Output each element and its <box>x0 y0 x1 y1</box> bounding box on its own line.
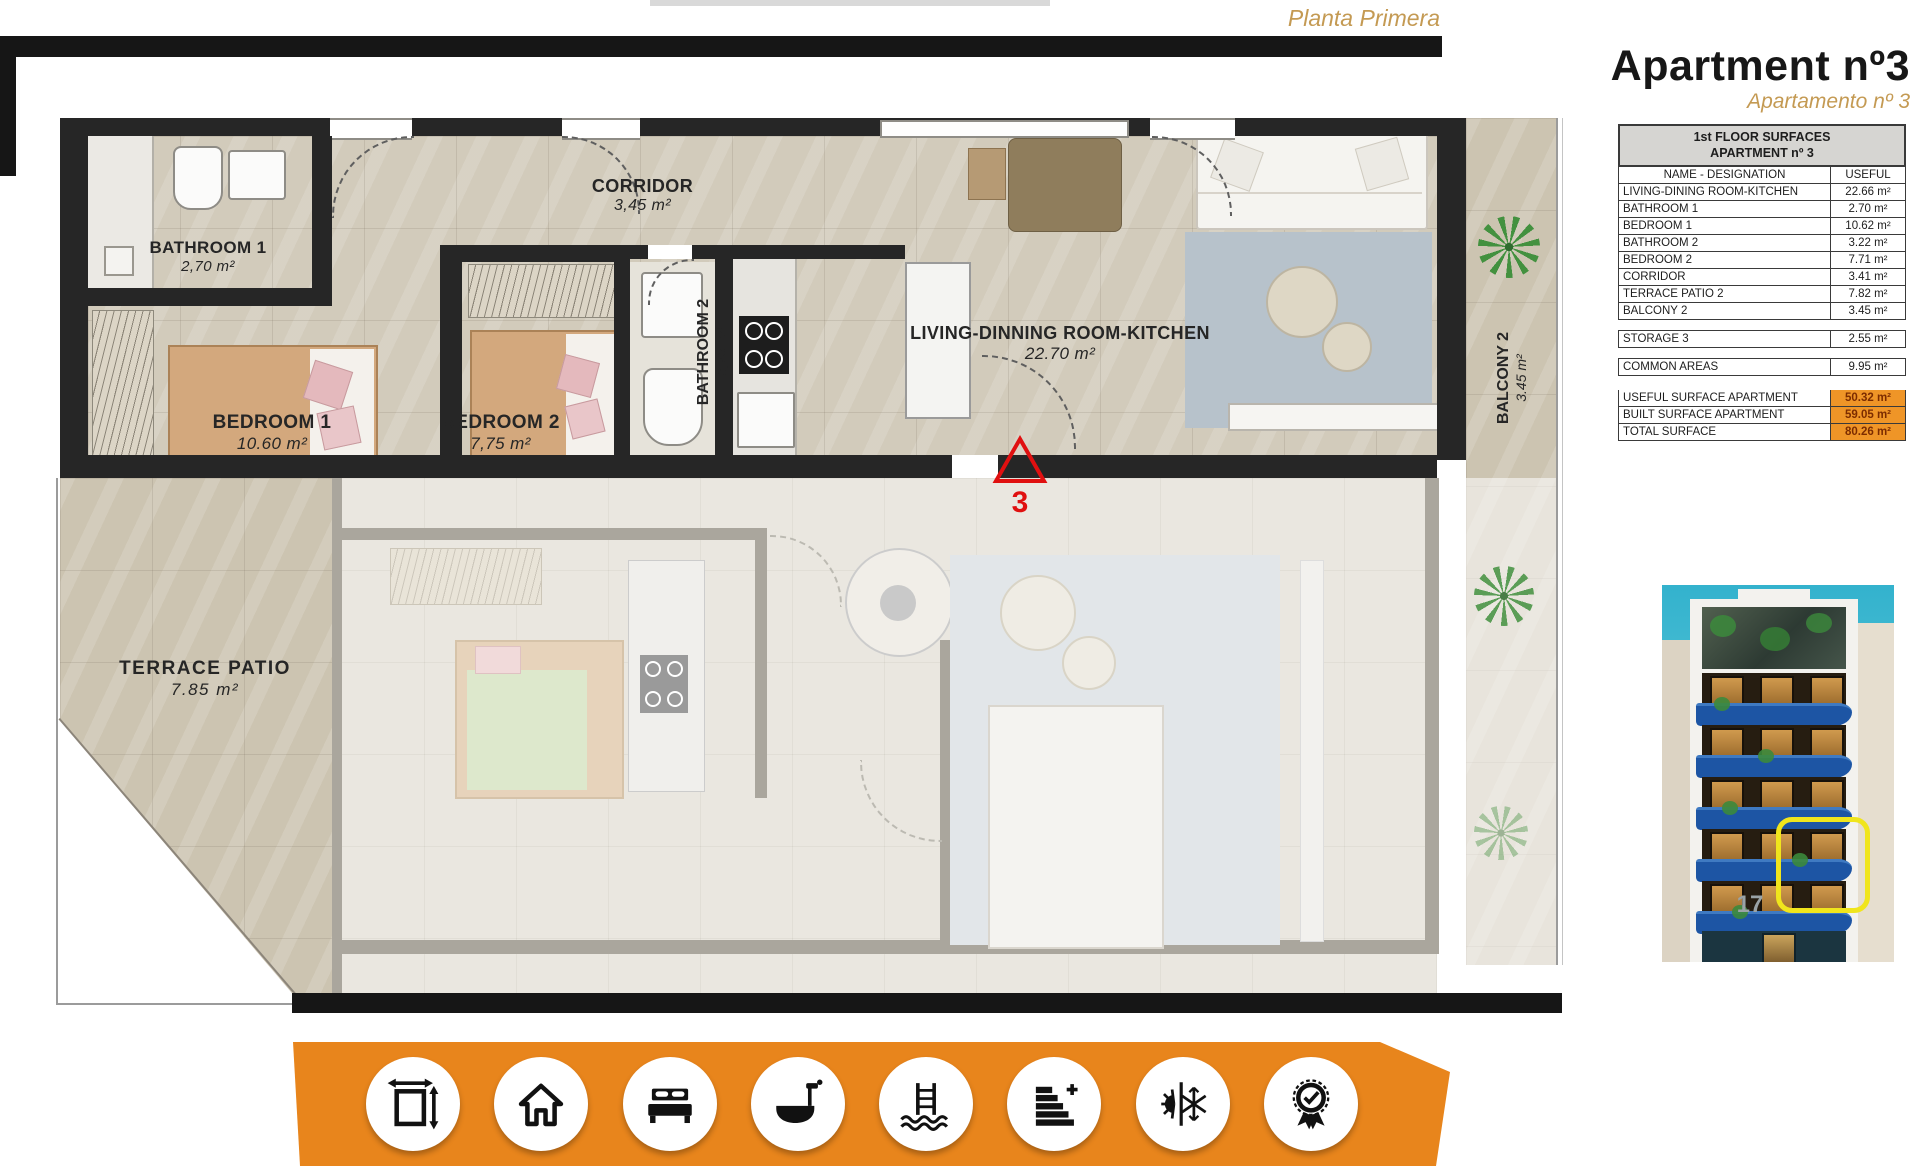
ghost-wall <box>755 528 767 798</box>
row-name: COMMON AREAS <box>1619 359 1831 375</box>
sofa-seam <box>1198 192 1422 194</box>
page-subtitle: Apartamento nº 3 <box>1500 90 1910 114</box>
table-row: BEDROOM 110.62 m² <box>1618 218 1906 235</box>
burner <box>765 350 783 368</box>
wall-bedroom2-top <box>462 245 614 262</box>
bed-icon <box>623 1057 717 1151</box>
roof-plant <box>1806 613 1832 633</box>
sofa-pillow <box>1355 137 1409 191</box>
wall-kitchen-top <box>733 245 905 259</box>
wall-bathroom2-left <box>614 245 630 460</box>
row-value: 3.41 m² <box>1831 269 1905 285</box>
ghost-pouf <box>1062 636 1116 690</box>
terrace-border <box>56 478 58 1005</box>
burner <box>645 661 661 677</box>
burner <box>667 691 683 707</box>
room-area: 7.85 m² <box>105 680 305 700</box>
row-name: LIVING-DINING ROOM-KITCHEN <box>1619 184 1831 200</box>
table-row: BATHROOM 23.22 m² <box>1618 235 1906 252</box>
ghost-pouf <box>1000 575 1076 651</box>
ghost-blanket <box>467 670 587 790</box>
plant-icon <box>1474 806 1528 860</box>
dining-table <box>1008 138 1122 232</box>
row-value: 50.32 m² <box>1831 390 1905 406</box>
row-name: TERRACE PATIO 2 <box>1619 286 1831 302</box>
row-name: STORAGE 3 <box>1619 331 1831 347</box>
ghost-console <box>1300 560 1324 942</box>
table-summary-row: BUILT SURFACE APARTMENT59.05 m² <box>1618 407 1906 424</box>
label-bathroom1: BATHROOM 1 2,70 m² <box>118 238 298 276</box>
col-useful: USEFUL <box>1831 167 1905 183</box>
wall-bathroom1-bottom <box>88 288 332 306</box>
row-name: BEDROOM 2 <box>1619 252 1831 268</box>
col-name: NAME - DESIGNATION <box>1619 167 1831 183</box>
room-name: BEDROOM 1 <box>182 412 362 434</box>
burner <box>765 322 783 340</box>
row-name: BATHROOM 1 <box>1619 201 1831 217</box>
room-area: 3.45 m² <box>1513 332 1529 424</box>
ghost-wardrobe <box>390 548 542 605</box>
row-value: 80.26 m² <box>1831 424 1905 440</box>
climate-icon <box>1136 1057 1230 1151</box>
top-divider-bar <box>0 36 1442 57</box>
bathtub-icon <box>751 1057 845 1151</box>
table-gap <box>1618 376 1906 390</box>
table-column-headers: NAME - DESIGNATION USEFUL <box>1618 167 1906 184</box>
label-corridor: CORRIDOR 3,45 m² <box>560 176 725 216</box>
tv-console <box>1228 403 1440 431</box>
room-name: BATHROOM 2 <box>695 299 713 405</box>
wardrobe-bedroom1 <box>92 310 154 477</box>
building-photo: 17 <box>1662 585 1894 962</box>
sink-icon <box>228 150 286 200</box>
row-value: 3.22 m² <box>1831 235 1905 251</box>
burner <box>745 350 763 368</box>
balcony-plant <box>1714 697 1730 711</box>
door-opening <box>648 245 692 259</box>
label-terrace: TERRACE PATIO 7.85 m² <box>105 658 305 700</box>
plan-bottom-bar <box>292 993 1562 1013</box>
row-name: USEFUL SURFACE APARTMENT <box>1619 390 1831 406</box>
table-row: BEDROOM 27.71 m² <box>1618 252 1906 269</box>
ghost-wall <box>332 478 342 995</box>
room-name: BEDROOM 2 <box>418 412 583 434</box>
room-name: CORRIDOR <box>560 176 725 197</box>
table-row: TERRACE PATIO 27.82 m² <box>1618 286 1906 303</box>
pool-icon <box>879 1057 973 1151</box>
table-row-common: COMMON AREAS9.95 m² <box>1618 358 1906 376</box>
row-value: 10.62 m² <box>1831 218 1905 234</box>
cooktop-icon <box>739 316 789 374</box>
wall-right <box>1437 118 1466 460</box>
row-name: CORRIDOR <box>1619 269 1831 285</box>
row-name: BATHROOM 2 <box>1619 235 1831 251</box>
balcony-outer-line <box>1556 118 1558 965</box>
surfaces-table: 1st FLOOR SURFACES APARTMENT nº 3 NAME -… <box>1618 124 1906 441</box>
room-area: 3,25 m² <box>713 299 729 405</box>
row-name: BALCONY 2 <box>1619 303 1831 319</box>
room-name: TERRACE PATIO <box>105 658 305 680</box>
table-row-storage: STORAGE 32.55 m² <box>1618 330 1906 348</box>
room-name: BALCONY 2 <box>1495 332 1513 424</box>
label-bedroom2: BEDROOM 2 7,75 m² <box>418 412 583 454</box>
row-value: 3.45 m² <box>1831 303 1905 319</box>
pouf <box>1266 266 1338 338</box>
penthouse-glass <box>1702 607 1846 669</box>
energy-rating-icon <box>1007 1057 1101 1151</box>
table-row: BATHROOM 12.70 m² <box>1618 201 1906 218</box>
room-area: 22.70 m² <box>900 344 1220 364</box>
window <box>880 120 1129 138</box>
ghost-sofa <box>988 705 1164 949</box>
table-title-line1: 1st FLOOR SURFACES <box>1622 129 1902 145</box>
burner <box>667 661 683 677</box>
surfaces-table-header: 1st FLOOR SURFACES APARTMENT nº 3 <box>1618 124 1906 167</box>
wall-left <box>60 118 88 480</box>
unit-marker-triangle <box>992 434 1048 486</box>
terrace-border-bottom <box>56 1003 332 1005</box>
row-value: 7.82 m² <box>1831 286 1905 302</box>
row-name: TOTAL SURFACE <box>1619 424 1831 440</box>
table-title-line2: APARTMENT nº 3 <box>1622 145 1902 161</box>
burner <box>745 322 763 340</box>
table-summary-row: TOTAL SURFACE80.26 m² <box>1618 424 1906 441</box>
room-area: 3,45 m² <box>560 197 725 216</box>
plant-icon <box>1474 566 1534 626</box>
ghost-bed <box>455 640 624 799</box>
ghost-cooktop <box>640 655 688 713</box>
toilet-icon <box>173 146 223 210</box>
balcony-outer-line2 <box>1562 118 1563 965</box>
room-name: LIVING-DINNING ROOM-KITCHEN <box>900 323 1220 344</box>
page-title: Apartment nº3 <box>1500 42 1910 91</box>
room-area: 2,70 m² <box>118 258 298 276</box>
building-floor <box>1702 725 1846 759</box>
row-value: 59.05 m² <box>1831 407 1905 423</box>
room-name: BATHROOM 1 <box>118 238 298 258</box>
ghost-figure <box>880 585 916 621</box>
room-area: 10.60 m² <box>182 434 362 454</box>
room-area: 7,75 m² <box>418 434 583 454</box>
pouf <box>1322 322 1372 372</box>
label-bedroom1: BEDROOM 1 10.60 m² <box>182 412 362 454</box>
table-gap <box>1618 348 1906 358</box>
row-value: 7.71 m² <box>1831 252 1905 268</box>
row-value: 9.95 m² <box>1831 359 1905 375</box>
floor-label: Planta Primera <box>1040 5 1440 32</box>
burner <box>645 691 661 707</box>
wall-bottom <box>60 455 1437 478</box>
roof-plant <box>1760 627 1790 651</box>
table-row: LIVING-DINING ROOM-KITCHEN22.66 m² <box>1618 184 1906 201</box>
toilet-icon <box>643 368 703 446</box>
unit-marker-number: 3 <box>992 486 1048 520</box>
ghost-pillow <box>475 646 521 674</box>
wardrobe-bedroom2 <box>468 264 616 318</box>
row-value: 2.55 m² <box>1831 331 1905 347</box>
table-row: CORRIDOR3.41 m² <box>1618 269 1906 286</box>
table-gap <box>1618 320 1906 330</box>
entrance-door <box>1762 933 1796 962</box>
balcony-fade <box>1466 478 1556 965</box>
left-edge-bar <box>0 36 16 176</box>
wall-top <box>60 118 1466 136</box>
balcony-plant <box>1722 801 1738 815</box>
chair <box>968 148 1006 200</box>
house-icon <box>494 1057 588 1151</box>
roof-plant <box>1710 615 1736 637</box>
plant-icon <box>1478 216 1540 278</box>
kitchen-sink-icon <box>737 392 795 448</box>
street-number: 17 <box>1720 891 1780 919</box>
ghost-wall <box>342 528 762 540</box>
cut-off-logo-remnant <box>650 0 1050 6</box>
amenity-bar <box>258 1042 1450 1166</box>
row-name: BUILT SURFACE APARTMENT <box>1619 407 1831 423</box>
table-summary-row: USEFUL SURFACE APARTMENT50.32 m² <box>1618 390 1906 407</box>
ghost-wall-right <box>1425 478 1439 954</box>
row-value: 22.66 m² <box>1831 184 1905 200</box>
dimensions-icon <box>366 1057 460 1151</box>
roof-parapet <box>1738 589 1810 601</box>
quality-badge-icon <box>1264 1057 1358 1151</box>
table-row: BALCONY 23.45 m² <box>1618 303 1906 320</box>
balcony-front <box>1696 755 1852 778</box>
wall-bathroom1-right <box>312 136 332 298</box>
label-living: LIVING-DINNING ROOM-KITCHEN 22.70 m² <box>900 323 1220 364</box>
row-name: BEDROOM 1 <box>1619 218 1831 234</box>
balcony-plant <box>1758 749 1774 763</box>
floor-plan-sheet: Planta Primera Apartment nº3 Apartamento… <box>0 0 1920 1166</box>
row-value: 2.70 m² <box>1831 201 1905 217</box>
apartment-highlight-box <box>1776 817 1870 913</box>
